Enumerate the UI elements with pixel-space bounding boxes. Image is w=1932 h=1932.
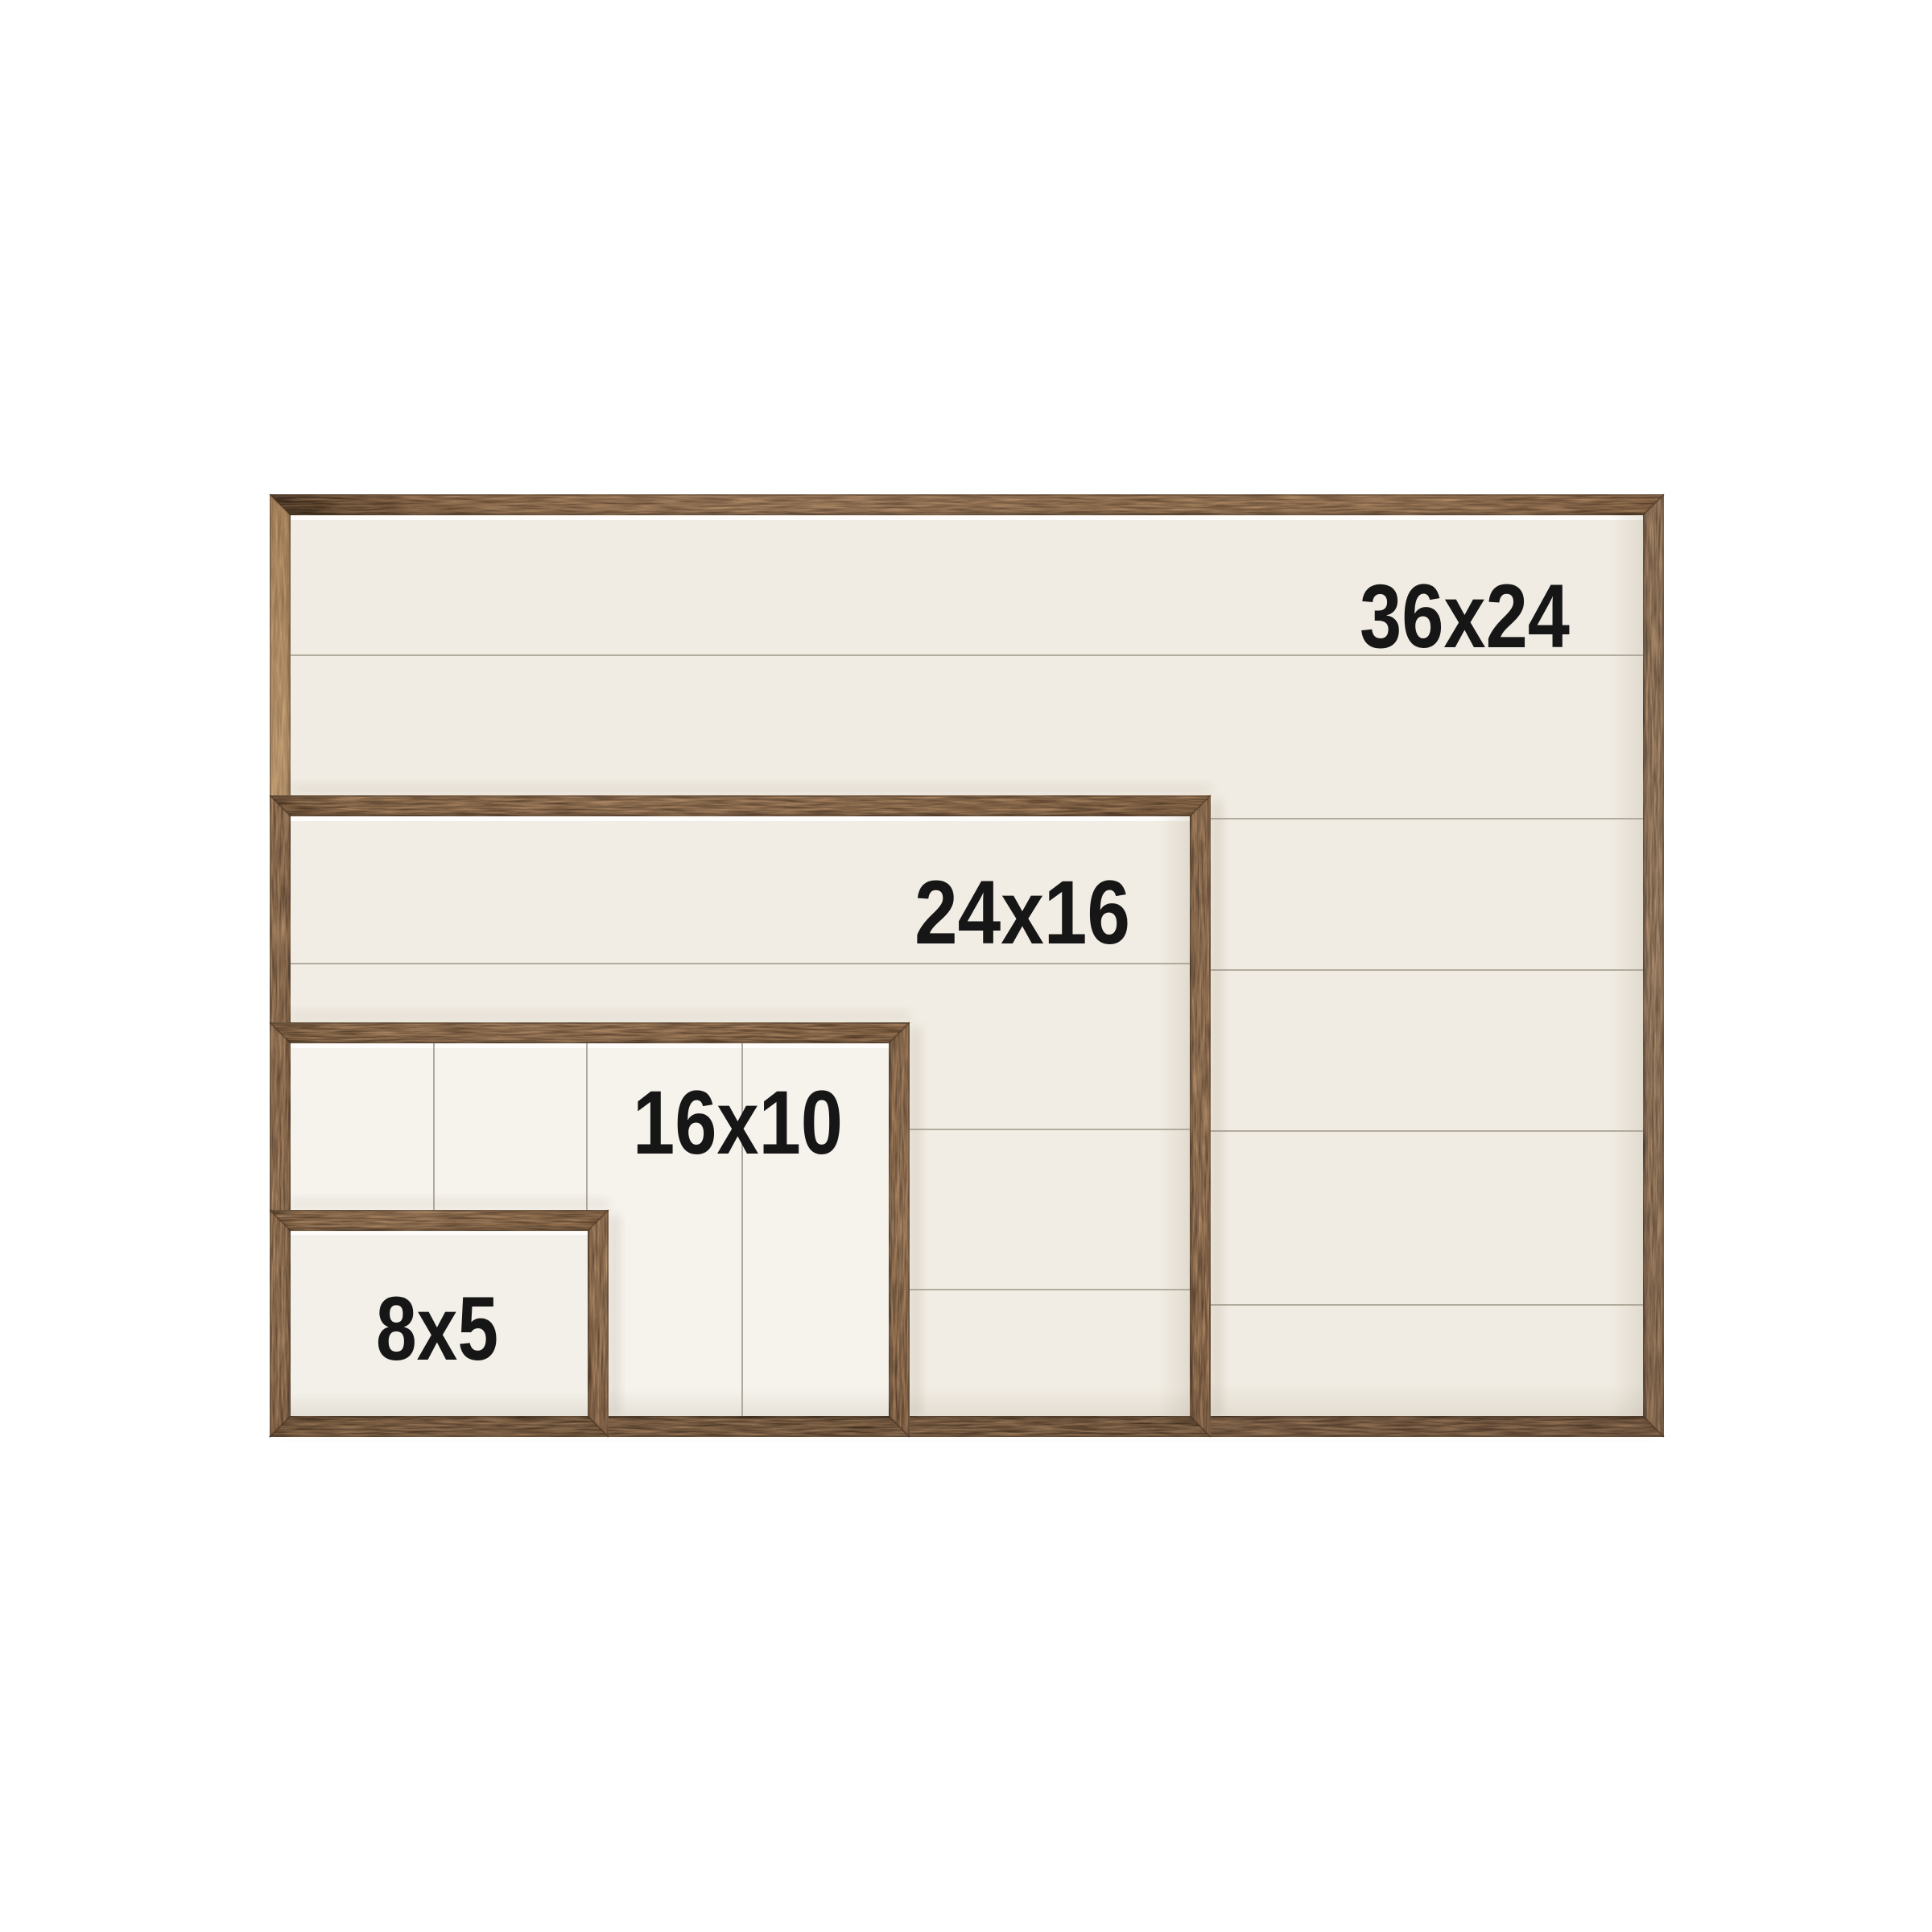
svg-text:16x10: 16x10 <box>633 1072 843 1173</box>
svg-text:24x16: 24x16 <box>914 862 1130 963</box>
svg-text:8x5: 8x5 <box>376 1278 498 1379</box>
svg-text:36x24: 36x24 <box>1360 566 1570 667</box>
